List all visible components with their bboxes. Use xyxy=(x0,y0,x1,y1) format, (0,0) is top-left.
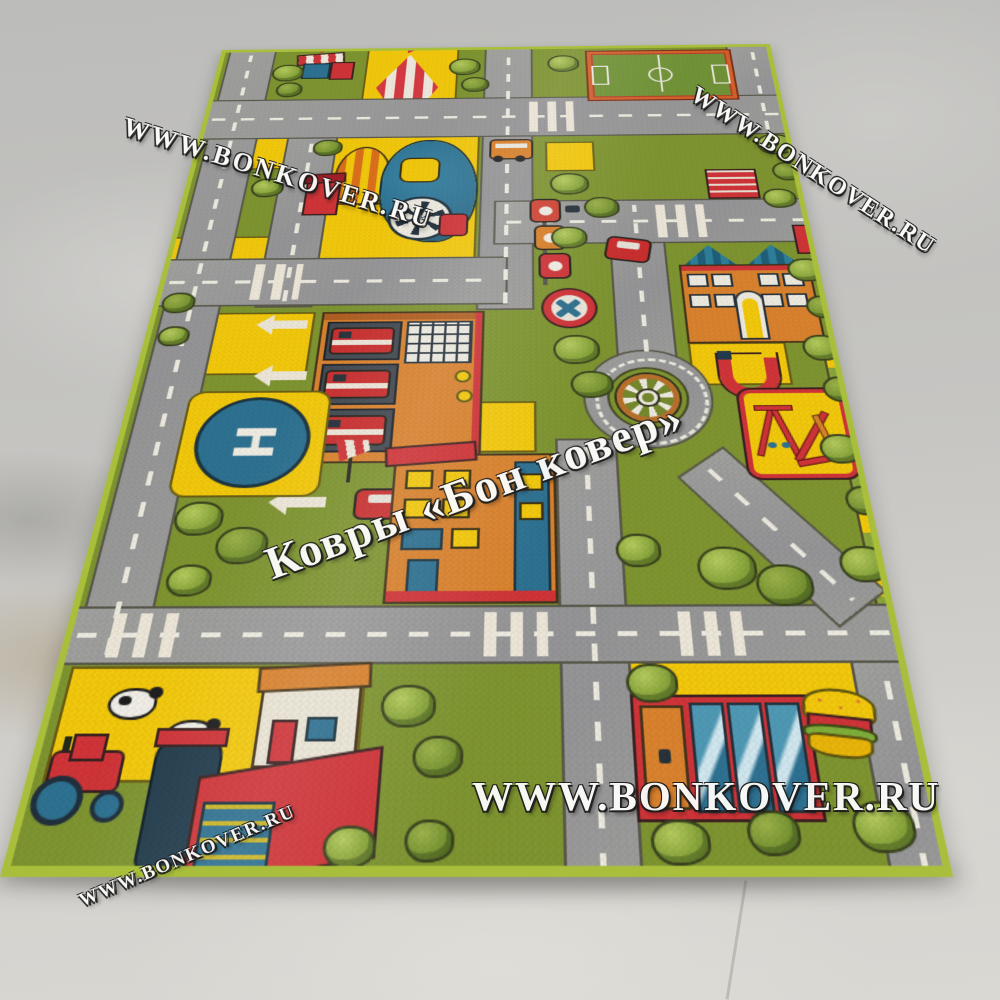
crosswalk xyxy=(249,264,304,300)
crosswalk xyxy=(655,204,708,237)
tree xyxy=(163,564,215,596)
field-center-circle xyxy=(647,67,673,82)
ride-cab xyxy=(440,215,466,235)
tree xyxy=(411,736,464,778)
tree xyxy=(550,173,590,195)
fire-truck xyxy=(325,371,389,396)
tree xyxy=(650,819,713,866)
crosswalk xyxy=(529,101,574,131)
station-light xyxy=(458,391,470,400)
tree xyxy=(547,55,579,72)
field-goal-box xyxy=(711,64,731,83)
window xyxy=(716,295,734,306)
silo-cap xyxy=(157,731,227,745)
window xyxy=(453,530,477,547)
crosswalk xyxy=(677,611,746,656)
tent-flag xyxy=(408,49,418,53)
tree xyxy=(171,502,227,536)
swing-top-bar xyxy=(755,406,792,410)
tree xyxy=(570,371,614,398)
swing-seat xyxy=(768,442,778,448)
tree xyxy=(553,335,601,364)
kiosk-blue-box xyxy=(303,64,330,77)
field-goal-box xyxy=(591,66,609,85)
fire-truck xyxy=(331,329,393,353)
road-arrow-left xyxy=(271,371,308,380)
swing-leg xyxy=(771,408,801,455)
window xyxy=(522,504,541,518)
tree xyxy=(379,685,437,728)
tractor-wheel-small xyxy=(86,790,127,823)
window xyxy=(763,295,782,306)
tree xyxy=(270,65,305,82)
door-lock xyxy=(658,749,671,763)
road-arrow-left xyxy=(287,497,327,508)
red-base xyxy=(385,591,555,602)
station-window-grid xyxy=(406,322,471,361)
fire-station xyxy=(304,313,483,462)
tree xyxy=(274,82,303,97)
kiosk-red-box xyxy=(330,63,353,79)
magnet-cap xyxy=(761,351,776,358)
ride-window xyxy=(401,159,439,181)
product-photo-scene: H xyxy=(0,0,1000,1000)
tree xyxy=(625,663,680,702)
fire-truck xyxy=(318,417,384,444)
tree xyxy=(461,77,490,92)
tree xyxy=(403,819,455,862)
tree xyxy=(448,58,480,75)
helipad-letter: H xyxy=(218,424,287,460)
tree xyxy=(615,534,663,568)
tractor-cab xyxy=(72,736,107,758)
garage-bay xyxy=(325,323,400,359)
swing-leg xyxy=(759,408,774,455)
farmhouse-window xyxy=(308,720,335,739)
tree xyxy=(695,546,760,590)
watermark-bottom-center: WWW.BONKOVER.RU xyxy=(472,772,940,820)
traffic-light xyxy=(541,254,570,277)
station-roof-trim xyxy=(324,313,483,321)
window xyxy=(788,295,807,306)
station-light xyxy=(457,372,469,381)
kiosk-flag xyxy=(320,49,330,53)
no-entry-sign xyxy=(543,289,596,326)
tractor-wheel-big xyxy=(24,776,88,826)
parked-bike xyxy=(565,205,580,212)
tree xyxy=(583,197,620,218)
tree xyxy=(551,226,588,248)
crosswalk xyxy=(105,613,181,657)
school-roof xyxy=(681,245,738,266)
bus xyxy=(491,140,531,158)
window xyxy=(691,296,709,307)
red-bench xyxy=(707,170,759,197)
window xyxy=(760,275,779,285)
magnet-cap xyxy=(717,351,732,360)
burger-stand xyxy=(805,688,883,767)
yellow-patch xyxy=(547,143,593,170)
garage-bay xyxy=(319,365,397,403)
window xyxy=(689,275,707,285)
swing-seat xyxy=(781,442,791,448)
crosswalk xyxy=(483,612,548,657)
window xyxy=(713,275,731,285)
traffic-light xyxy=(532,200,560,221)
road-arrow-left xyxy=(273,320,308,328)
